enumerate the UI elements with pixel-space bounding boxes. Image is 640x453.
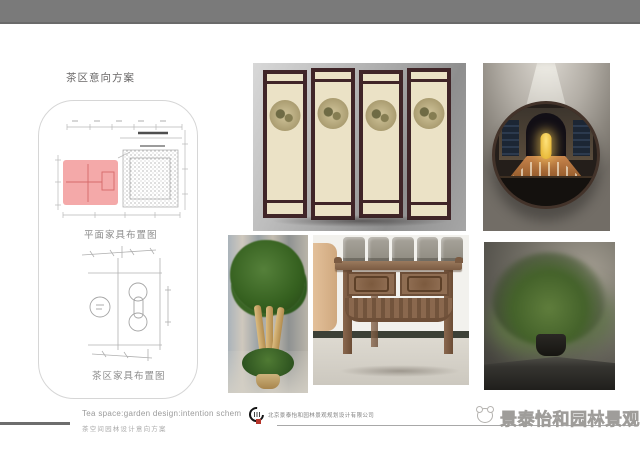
- stone-block: [392, 237, 414, 263]
- tree-canopy: [230, 240, 305, 314]
- photo-bamboo-plant: [484, 242, 615, 390]
- screen-panel: [311, 68, 355, 220]
- photo-moon-gate-dining: [483, 63, 610, 231]
- table-drawer: [400, 272, 449, 296]
- stone-block: [417, 237, 439, 263]
- stone-block: [368, 237, 390, 263]
- watermark-text: 景泰怡和园林景观: [500, 405, 640, 430]
- top-gray-bar: [0, 0, 640, 24]
- table-shadow: [339, 365, 461, 377]
- subtitle-chinese: 茶空间园林设计意向方案: [82, 423, 167, 433]
- table-top-plank: [335, 261, 462, 270]
- glowing-statue: [541, 133, 552, 159]
- screen-panel: [407, 68, 451, 220]
- stone-block: [343, 237, 365, 263]
- table-body: [345, 270, 452, 326]
- table-drawer: [347, 272, 396, 296]
- dark-plant-pot: [536, 334, 566, 356]
- screen-medallion-painting: [270, 100, 301, 131]
- screen-medallion-painting: [414, 98, 445, 129]
- plant-pot: [256, 374, 280, 389]
- floor-plan-top-drawing: [50, 114, 190, 226]
- lattice-window: [502, 120, 519, 156]
- photo-console-table: [313, 235, 469, 385]
- photo-folding-screen: [253, 63, 466, 231]
- floor-plan-bottom-drawing: [52, 246, 192, 366]
- company-logo-glyphs: [254, 412, 261, 417]
- screen-medallion-painting: [366, 100, 397, 131]
- carved-stone-blocks: [343, 237, 463, 263]
- screen-medallion-painting: [318, 98, 349, 129]
- gate-bowl-ledge: [495, 176, 597, 206]
- watermark: 景泰怡和园林景观: [470, 405, 638, 429]
- watermark-panda-icon: [477, 408, 493, 423]
- screen-floor-shadow: [271, 215, 449, 227]
- stone-bench: [484, 354, 615, 390]
- company-name-text: 北京景泰怡和园林景观规划设计有限公司: [268, 411, 374, 419]
- tan-drape: [313, 243, 337, 331]
- bamboo-fronds: [492, 252, 606, 346]
- plan-highlight-tea-area: [63, 160, 118, 205]
- plan-label-top: 平面家具布置图: [84, 227, 158, 241]
- lattice-window: [573, 120, 590, 156]
- screen-panels: [263, 70, 451, 220]
- photo-potted-tree: [228, 235, 308, 393]
- page-title: 茶区意向方案: [66, 70, 135, 85]
- carved-apron: [345, 298, 452, 322]
- screen-panel: [263, 70, 307, 218]
- company-logo-red-seal: [256, 419, 261, 424]
- plan-label-bottom: 茶区家具布置图: [92, 368, 166, 382]
- screen-panel: [359, 70, 403, 218]
- slide-canvas: 茶区意向方案: [0, 0, 640, 453]
- footer-accent-line: [0, 422, 70, 425]
- subtitle-english: Tea space:garden design:intention schem: [82, 409, 241, 418]
- moon-gate-circle: [492, 101, 600, 209]
